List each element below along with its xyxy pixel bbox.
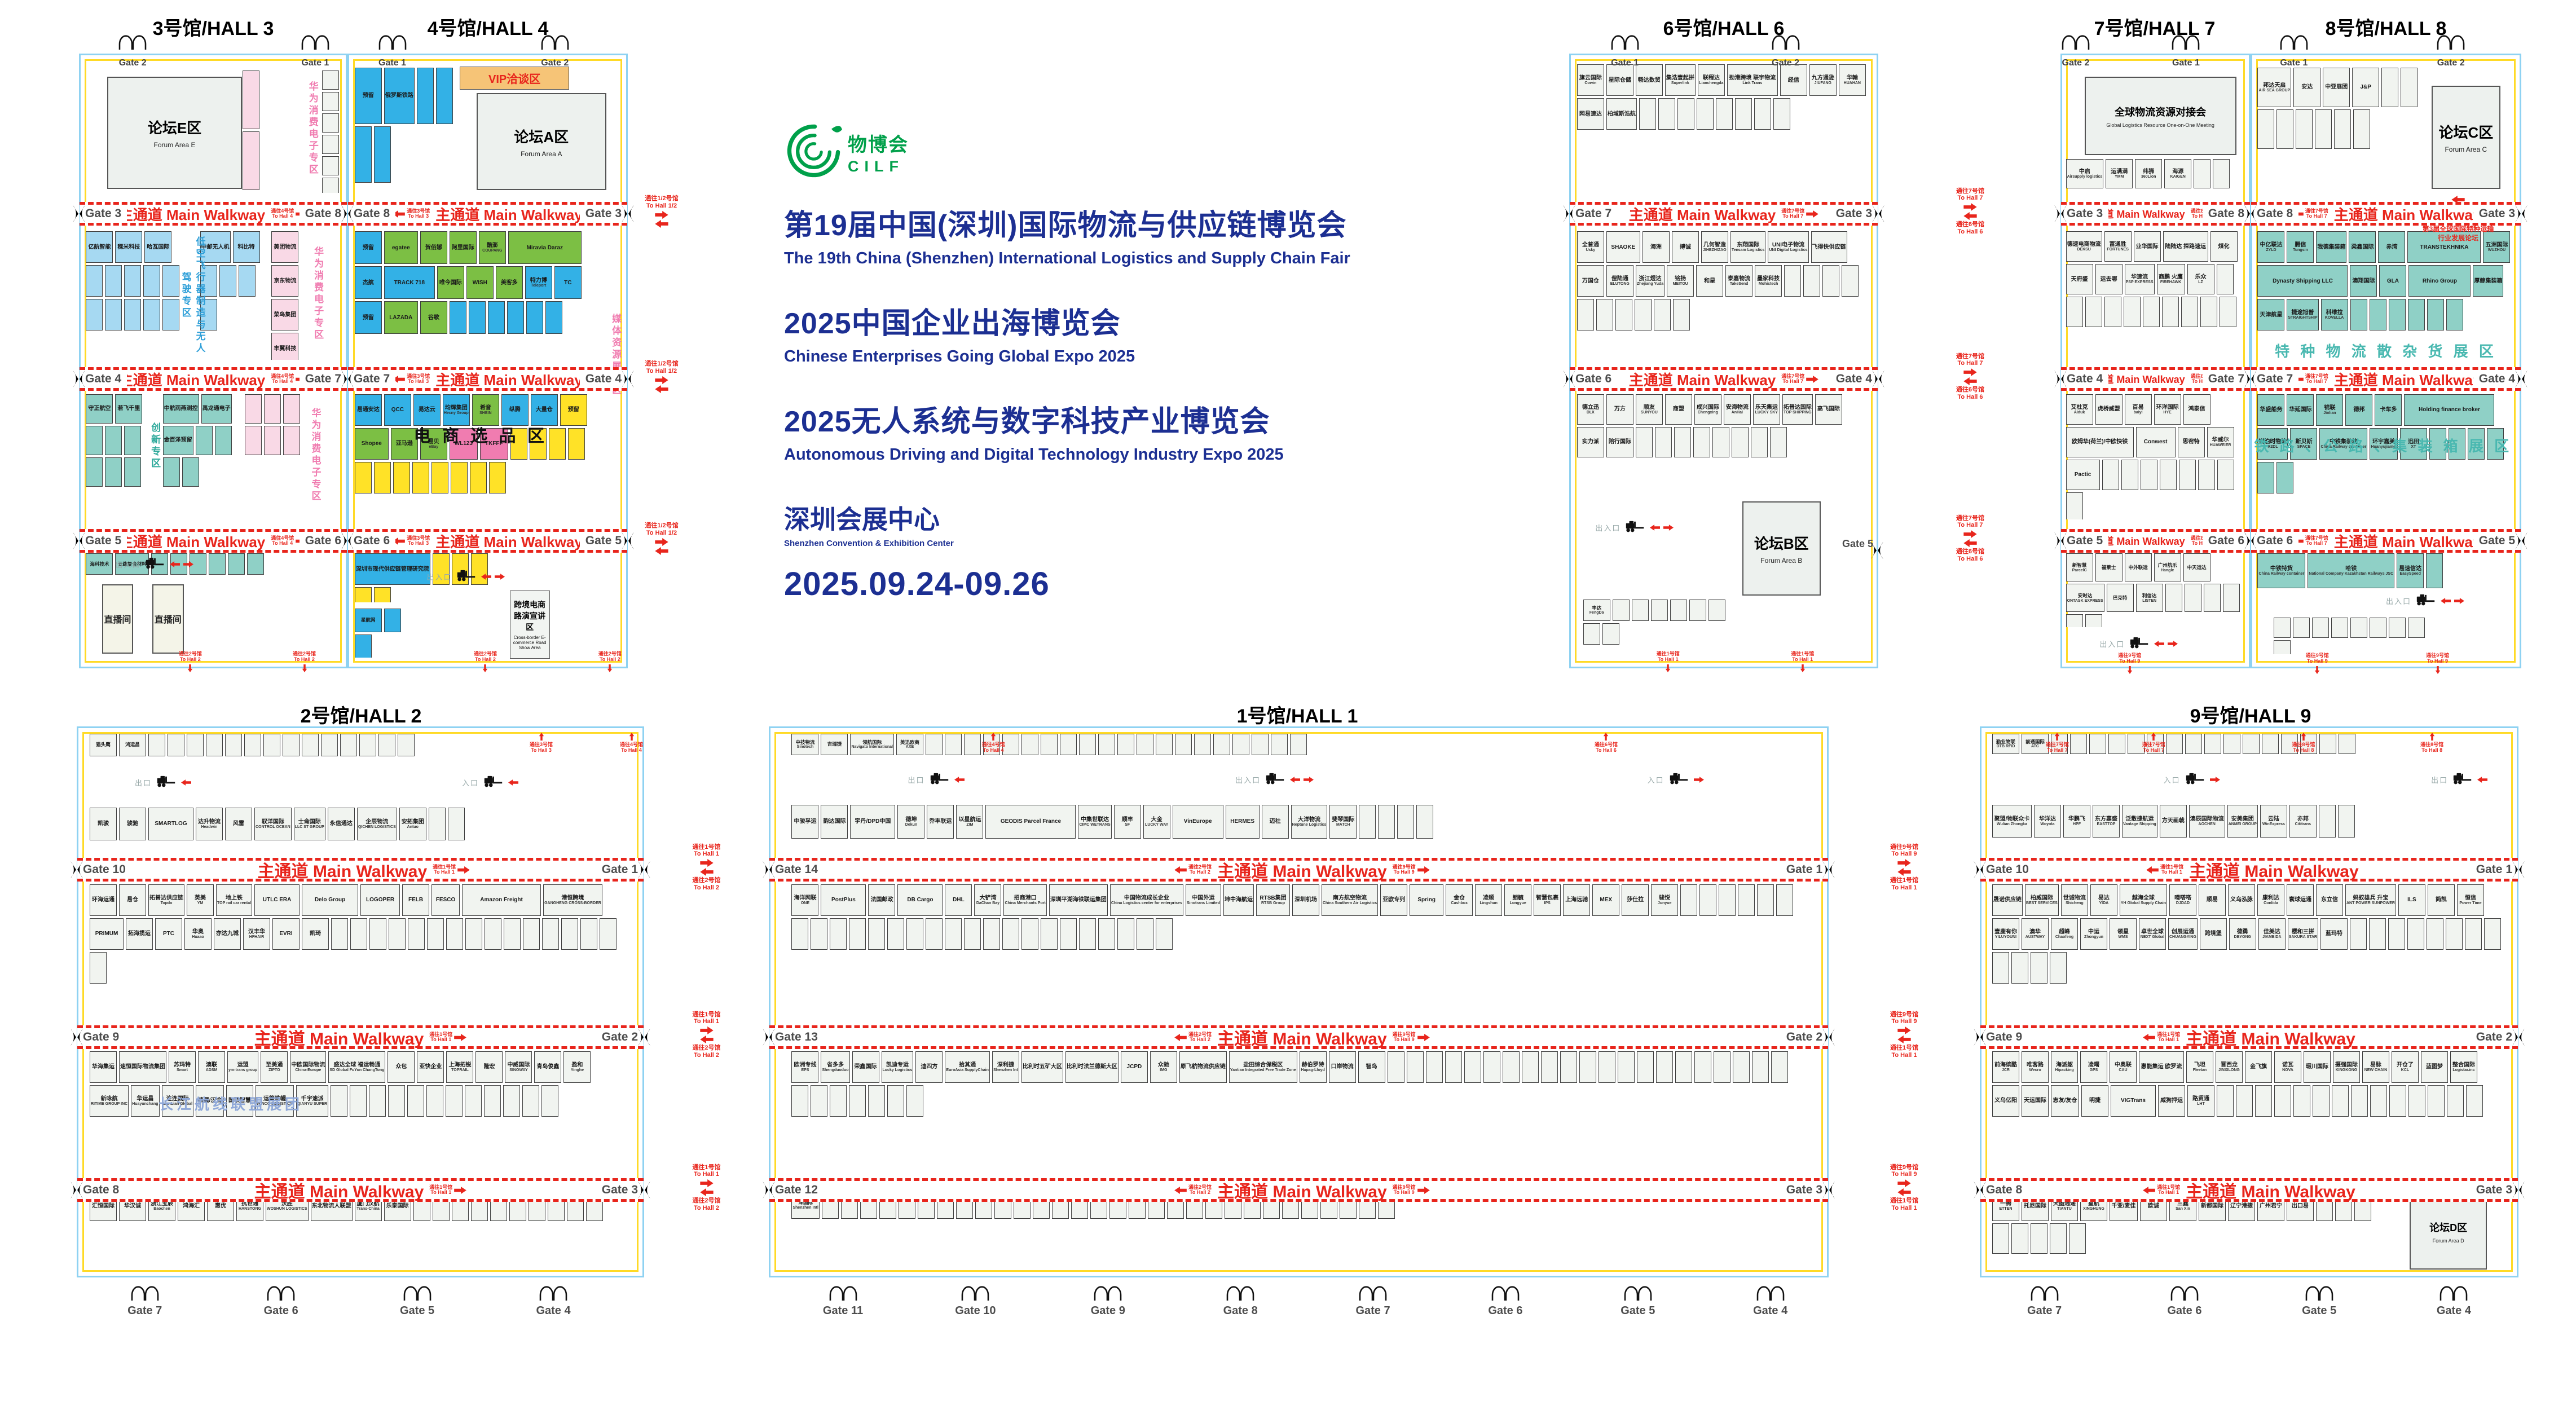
walkway-middle: 通往2号馆To Hall 2主通道 Main Walkway通往9号馆To Ha… [824,857,1781,882]
booth: 谷歌 [420,301,447,334]
booth: 顺友SUNYOU [1636,394,1663,425]
booth [964,734,981,755]
zone-label-vertical: 华为消费电子专区 [306,70,320,187]
booth [983,918,1000,950]
gate-arch-icon [2030,1285,2059,1302]
door-icon [69,1026,84,1048]
to-hall-annotation: 通往7号馆To Hall 7 [2298,536,2328,547]
booth [2338,805,2355,838]
booth: 中欧国际物流China-Europe [290,1051,326,1083]
booth [2217,1085,2234,1117]
booth [849,1085,866,1117]
booth: 商盟 [1665,394,1692,425]
booth [1137,918,1153,950]
booth [2198,460,2215,490]
between-hall-annotation: 通往7号馆To Hall 7通往6号馆To Hall 6 [1883,510,2058,567]
booth [906,918,923,950]
booth [1654,299,1671,330]
booth [1719,884,1736,916]
booth [322,156,339,175]
booth [451,462,468,493]
booth [2484,918,2501,950]
bottom-gate-label: Gate 4 [536,1305,570,1317]
booth: 康利达Conlida [2257,884,2284,916]
booth [1098,734,1115,755]
booth [2274,1085,2291,1117]
booth [1670,600,1687,621]
booth: Delo Group [302,884,358,916]
hall-title-4: 4号馆/HALL 4 [428,13,549,41]
booth [811,1085,827,1117]
booth [1618,1051,1635,1083]
bottom-gate-label: Gate 7 [1355,1305,1390,1317]
booth: 易仓 [119,884,146,916]
booth [389,918,406,950]
booth [541,1085,558,1117]
booth-section: 凯骏骏驰SMARTLOG达升物流Headwin风雷驭洋国际CONTROL OCE… [90,808,631,852]
booth [162,265,179,297]
booth-section: 旗云国际Cowin星际仓储畅达数贸集浩壹起拼Superlink联程达Lianch… [1577,64,1870,193]
cilf-logo: 物博会 CILF [784,121,1540,188]
between-hall-annotation: 通往1/2号馆To Hall 1/2 [631,510,693,567]
booth [105,265,122,297]
door-icon [340,202,355,225]
booth [945,734,962,755]
booth [2185,734,2202,754]
bottom-gate-label: Gate 7 [127,1305,162,1317]
booth: 唯今国际 [437,266,464,299]
main-walkway: Gate 7通往7号馆To Hall 7主通道 Main WalkwayGate… [2251,367,2521,391]
walkway-middle: 通往7号馆To Hall 7主通道 Main Walkway [2298,531,2473,552]
between-hall-annotation: 通往7号馆To Hall 7通往6号馆To Hall 6 [1883,183,2058,240]
booth: 省多多Shengduoduo [821,1051,849,1083]
booth [86,299,103,330]
booth [124,299,141,330]
booth [1522,1051,1539,1083]
booth: 业华国际 [2134,231,2161,262]
booth: 劲港跨境 联宇物流Link Trans [1727,64,1778,96]
booth [398,734,415,756]
booth: 寰球运通 [2287,884,2314,916]
to-hall-annotation: 通往4号馆To Hall 4 [271,374,300,385]
booth: 中亚展团 [2323,68,2350,107]
booth [2031,952,2047,984]
booth: 易速信达EasySpeed [2397,553,2424,588]
booth: 运去哪 [2095,264,2123,294]
top-gate-label: Gate 1 [378,58,406,68]
booth [417,68,434,124]
booth: PTC [155,918,182,950]
booth-section: 环海运通易仓拓普达供应链Topdo英美YM地上铁TOP rail car ren… [90,884,631,1019]
booth: 金仓Cashbox [1446,884,1473,916]
booth: 希音SHEIN [472,394,499,426]
booth [2089,734,2106,754]
booth [542,918,559,950]
booth: 亦邦Cititrans [2289,805,2317,838]
between-hall-annotation: 通往1号馆To Hall 1通往2号馆To Hall 2 [646,1160,767,1216]
to-hall-annotation: 通往7号馆To Hall 7 [2298,209,2328,219]
booth [1632,600,1649,621]
booth [378,734,395,756]
booth [1771,1051,1788,1083]
logo-text-zh: 物博会 [848,129,909,157]
booth: 港恒跨境GANGHENG CROSS-BORDER [543,884,602,916]
booth: 中启Airsupply logistics [2066,159,2104,188]
top-gate-label: Gate 2 [119,58,147,68]
booth: 联程达Lianchengda [1698,64,1725,96]
booth: 泛散捷航运Vantage Shipping [2122,805,2157,838]
booth [1060,918,1077,950]
booth: 捷途旭普STRAIGHTSHIP [2287,299,2318,330]
to-hall-annotation: 通往3号馆To Hall 3 [395,374,430,385]
walkway-gate-left: Gate 8 [1980,1183,2028,1197]
booth: 蚂蚁雄兵 升宝ANT POWER SUNPOWER [2345,884,2396,916]
booth: 云陆WinExpress [2260,805,2287,838]
booth: LAZADA [384,301,418,334]
booth: LOGOPER [360,884,400,916]
booth [369,1085,386,1117]
main-walkway: Gate 7主通道 Main Walkway通往7号馆To Hall 7Gate… [1570,202,1878,226]
booth: 预留 [355,231,382,264]
gate-arch-icon [118,34,147,51]
forum-area: 论坛A区Forum Area A [477,93,606,190]
to-hall-annotation: 通往7号馆To Hall 7 [1781,209,1818,219]
gate-arch-icon [2170,1285,2199,1302]
booth: 拾其通EuroAsia SupplyChain [945,1051,989,1083]
booth: 易脉NEW CHAIN [2362,1051,2389,1083]
booth: 梁鑫国际 [2349,231,2376,263]
booth [384,609,401,632]
booth [355,634,372,658]
booth [86,426,103,455]
to-hall-annotation: 通往7号馆To Hall 7 [1781,374,1818,385]
booth: 聚盟/物联众卡Wulian Zhongka [1992,805,2032,838]
booth: 上海拓锐TOPRAIL [446,1051,473,1083]
door-icon [1972,1179,1987,1201]
booth: 经信 [1780,64,1807,96]
bottom-gate-label: Gate 5 [2302,1305,2336,1317]
to-hall-annotation: 通往2号馆To Hall 2 [1174,865,1212,875]
booth [1655,427,1672,457]
booth: 越海全球YH Global Supply Chain [2120,884,2167,916]
booth [322,178,339,193]
booth: 锦联Jinlian [2316,394,2343,426]
walkway-middle: 通往7号馆To Hall 7主通道 Main Walkway [2298,204,2473,224]
booth: 士侖国际LLC ST GROUP [294,808,325,840]
booth [1156,918,1173,950]
booth: Dynasty Shipping LLC [2257,265,2348,297]
door-icon [72,530,86,552]
booth [2011,1223,2028,1254]
walkway-middle: 主通道 Main Walkway通往8号馆To Hall 8 [2108,534,2203,548]
booth: Miravia Daraz [508,231,582,264]
booth: 领航国际Navigato International [850,734,894,755]
booth: 乐天集运LUCKY SKY [1753,394,1780,425]
to-hall-annotation: 通往9号馆To Hall 9 [1393,865,1430,875]
booth: 中威国际SINOWAY [505,1051,532,1083]
booth [1426,1051,1443,1083]
expo3-title-en: Autonomous Driving and Digital Technolog… [784,446,1540,464]
booth: 方天画戟 [2160,805,2187,838]
booth [1689,600,1706,621]
booth-section: 德速电商物流DEKSU富通胜FORTUNES业华国际陆陆达 探路速运煤化天府盛运… [2066,231,2245,363]
walkway-middle: 通往1号馆To Hall 1主通道 Main Walkway [2035,857,2471,882]
booth [1613,600,1630,621]
main-walkway: Gate 5主通道 Main Walkway通往8号馆To Hall 8Gate… [2061,529,2250,553]
booth: 澳辰国际物流AOCHEN [2189,805,2225,838]
booth: 德邦 [2345,394,2372,426]
booth: 星际仓储 [1606,64,1633,96]
door-icon [1562,202,1577,225]
booth-section: 中邮无人机科比特 [200,231,269,360]
cilf-swirl-icon [784,121,843,180]
booth-section: 亿航智能稞米科技哈瓦国际 [86,231,184,360]
door-icon [1821,1179,1836,1201]
walkway-label: 主通道 Main Walkway [254,1178,424,1202]
hall-title-1: 1号馆/HALL 1 [1237,700,1358,728]
booth: 网易速达 [1577,98,1604,130]
booth [355,462,372,493]
door-icon [2243,202,2258,225]
booth [2121,460,2138,490]
booth: MEX [1592,884,1619,916]
door-icon [1871,368,1886,390]
booth [484,1085,501,1117]
booth [1041,734,1058,755]
gate-arch-icon [1623,1285,1653,1302]
booth: 广州航乐Hangle [2154,553,2181,581]
top-gate-label: Gate 2 [541,58,569,68]
booth [219,265,236,297]
booth: DHL [945,884,972,916]
booth [2276,462,2293,493]
walkway-middle: 主通道 Main Walkway通往4号馆To Hall 4 [127,204,300,224]
booth [350,918,367,950]
to-hall-down-arrow: 通往1号馆To Hall 1 [1791,651,1814,674]
booth [945,918,962,950]
booth: 中亿联达ZYLD [2257,231,2284,263]
booth: 跨境堡 [2200,918,2227,950]
booth [2070,734,2087,754]
gate-arch-icon [2279,34,2309,51]
booth: 斐琴国际MATCH [1329,805,1357,839]
booth [1445,1051,1462,1083]
walkway-gate-left: Gate 14 [769,863,824,876]
booth [2274,618,2291,638]
booth: 纬狮360Lion [2135,159,2162,188]
booth: 中外联运 [2125,553,2152,581]
booth: 海派躯Hipacking [2051,1051,2078,1083]
booth [264,426,281,455]
booth [225,734,242,756]
booth: 华延国际 [2287,394,2314,426]
to-hall-annotation: 通往1号馆To Hall 1 [2143,1032,2180,1043]
walkway-gate-left: Gate 6 [1570,372,1617,386]
booth [1079,734,1096,755]
booth: 东翔国际Tensam Logistics [1730,231,1766,263]
booth [105,299,122,330]
booth: Amazon Freight [462,884,541,916]
bottom-gate-label: Gate 5 [400,1305,434,1317]
booth-section: 全普通UskySHAOKE海洲搏诚几何智造JIHEZHIZAO东翔国际Tensa… [1577,231,1870,363]
booth [2165,584,2182,612]
entrance-exit: 出入口 [1235,772,1314,788]
top-gate-label: Gate 1 [301,58,329,68]
booth [2389,299,2406,330]
hall-3: Gate 3主通道 Main Walkway通往4号馆To Hall 4Gate… [79,54,347,668]
booth [470,462,487,493]
door-icon [620,368,635,390]
booth [2066,297,2083,327]
booth: 东立信 [2316,884,2343,916]
booth [374,587,391,602]
booth [283,394,300,424]
booth [124,426,141,455]
booth [2031,1223,2047,1254]
booth: 鸿运昌 [119,734,146,756]
booth [2351,1085,2368,1117]
hall-title-9: 9号馆/HALL 9 [2190,700,2311,728]
walkway-label: 主通道 Main Walkway [1629,369,1776,390]
booth: 美迅欧商AXE [896,734,923,755]
entrance-exit: 出口 [908,772,964,788]
logo-text-en: CILF [848,158,909,175]
to-hall-down-arrow: 通往9号馆To Hall 9 [2426,653,2449,676]
booth [2102,460,2119,490]
booth: 拓普达供应链Topdo [148,884,184,916]
booth: PostPlus [821,884,866,916]
door-icon [1972,1026,1987,1048]
booth [1732,427,1749,457]
gate-arch-icon [1756,1285,1785,1302]
to-hall-annotation: 通往2号馆To Hall 2 [1174,1185,1212,1196]
booth: VinEurope [1173,805,1223,839]
main-walkway: Gate 10通往1号馆To Hall 1主通道 Main WalkwayGat… [1980,858,2518,882]
booth [350,1085,367,1117]
door-icon [2514,202,2529,225]
booth: 中运Zhongyun [2080,918,2107,950]
to-hall-down-arrow: 通往2号馆To Hall 2 [293,651,316,674]
booth: FESCO [431,884,460,916]
booth [2381,68,2398,107]
booth: 安时达ONTASK EXPRESS [2066,584,2104,612]
to-hall-annotation: 通往4号馆To Hall 4 [271,536,300,547]
door-icon [2053,530,2068,552]
booth [1137,734,1153,755]
booth [322,70,339,90]
booth [2204,734,2221,754]
booth [489,462,506,493]
booth [1041,918,1058,950]
booth: 领星WMS [2110,918,2137,950]
booth: 口岸物流 [1329,1051,1356,1083]
gate-arch-icon [130,1285,160,1302]
booth: 宇丹/DPD中国 [850,805,895,839]
main-title-zh: 第19届中国(深圳)国际物流与供应链博览会 [784,201,1540,244]
booth [1712,427,1729,457]
walkway-label: 主通道 Main Walkway [127,204,265,224]
bottom-gate-label: Gate 9 [1091,1305,1125,1317]
booth [811,918,827,950]
hall-6: Gate 7主通道 Main Walkway通往7号馆To Hall 7Gate… [1569,54,1878,668]
booth: TRACK 718 [384,266,435,299]
booth [1021,734,1038,755]
booth [1992,952,2009,984]
booth: 凯骏 [90,808,117,840]
booth [2050,952,2067,984]
booth [1842,265,1859,297]
entrance-exit: 入口 [1648,772,1704,788]
booth: 腾信Tungsin [2287,231,2314,263]
main-walkway: Gate 12通往2号馆To Hall 2主通道 Main Walkway通往9… [769,1178,1828,1202]
walkway-label: 主通道 Main Walkway [435,369,580,390]
booth: 迪四方 [915,1051,943,1083]
hall-8: Gate 8通往7号馆To Hall 7主通道 Main WalkwayGate… [2251,54,2521,668]
booth-section: 聚盟/物联众卡Wulian Zhongka华洋达Woyota华鹏飞HPF东方嘉盛… [1992,805,2506,852]
booth [302,734,319,756]
walkway-label: 主通道 Main Walkway [1217,1178,1387,1202]
booth-section: 海洋网联ONEPostPlus法国邮政DB CargoDHL大铲湾DaChan … [791,884,1806,1019]
booth [2334,109,2351,149]
booth: 荣鑫国际 [852,1051,879,1083]
booth: 凌曙GPS [2080,1051,2107,1083]
booth: 乔丰联运 [927,805,954,839]
booth [469,301,486,334]
main-walkway: Gate 13通往2号馆To Hall 2主通道 Main Walkway通往9… [769,1025,1828,1049]
walkway-label: 主通道 Main Walkway [1217,1025,1387,1050]
booth: 利信达LISTEN [2136,584,2163,612]
booth [1290,734,1307,755]
booth: egatee [384,231,418,264]
booth: 商鹏 火鹰FIREHAWK [2157,264,2185,294]
booth: 柏域斯浩航 [1606,98,1637,130]
booth: Holding finance broker [2404,394,2494,426]
booth [1680,884,1697,916]
booth [2217,264,2234,294]
main-walkway: Gate 6主通道 Main Walkway通往7号馆To Hall 7Gate… [1570,367,1878,391]
booth [393,462,410,493]
booth: 陆陆达 探路速运 [2163,231,2208,262]
booth: 澳华AUSTWAY [2022,918,2049,950]
main-walkway: Gate 9主通道 Main Walkway通往1号馆To Hall 1Gate… [77,1025,644,1049]
to-hall-annotation: 通往1号馆To Hall 1 [433,865,470,875]
booth: 猫头鹰 [90,734,117,756]
walkway-middle: 通往3号馆To Hall 3主通道 Main Walkway [395,369,580,390]
booth-section: 华盛船务华延国际锦联Jinlian德邦卡车多Holding finance br… [2257,394,2514,519]
booth: 达升物流Headwin [196,808,223,840]
door-icon [69,1179,84,1201]
booth: 俄罗斯铁路 [384,68,415,124]
booth: 德坤Dekun [897,805,924,839]
booth: 我德集装箱 [2316,231,2346,263]
booth: 星航网 [355,609,382,632]
booth: 思密特 [2178,427,2205,457]
booth [1738,884,1755,916]
booth [2066,614,2083,627]
between-hall-annotation: 通往1/2号馆To Hall 1/2 [631,349,693,405]
bottom-gate-label: Gate 6 [1488,1305,1522,1317]
booth: 厚鲸集装箱 [2473,265,2503,297]
booth: 煤化 [2210,231,2238,262]
walkway-gate-left: Gate 8 [2251,207,2298,221]
booth [2293,618,2310,638]
booth: Rhino Group [2408,265,2471,297]
door-icon [2511,1026,2526,1048]
booth: 世诚物流Shicheng [2061,884,2088,916]
booth [522,1085,539,1117]
booth [1378,805,1395,839]
booth: FELB [402,884,429,916]
